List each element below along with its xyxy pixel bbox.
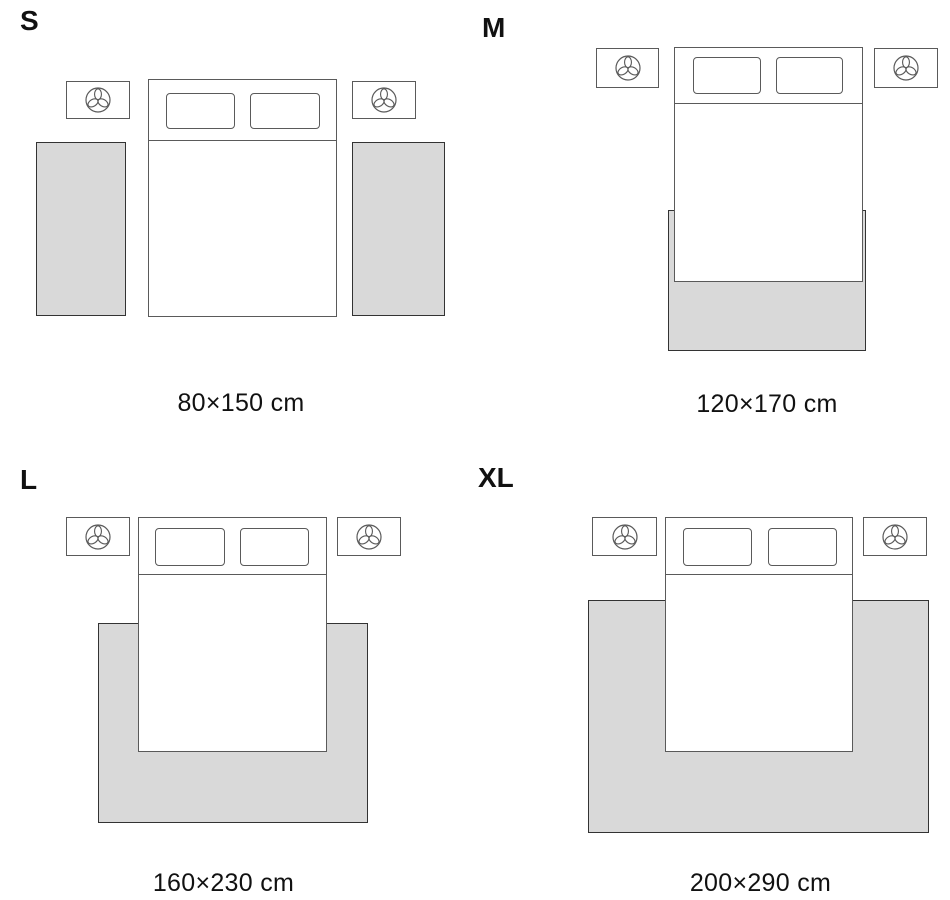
- nightstand-left: [592, 517, 657, 556]
- bed: [665, 517, 853, 752]
- pillow-left: [155, 528, 225, 566]
- pillow-left: [693, 57, 761, 94]
- nightstand-right: [352, 81, 416, 119]
- pillow-right: [776, 57, 843, 94]
- pillow-left: [683, 528, 752, 566]
- nightstand-right: [874, 48, 938, 88]
- plant-icon: [368, 84, 400, 116]
- plant-icon: [890, 52, 922, 84]
- nightstand-left: [596, 48, 659, 88]
- plant-icon: [612, 52, 644, 84]
- bed-headboard-divider: [149, 140, 336, 141]
- bed: [674, 47, 863, 282]
- bed-headboard-divider: [675, 103, 862, 104]
- pillow-right: [240, 528, 309, 566]
- plant-icon: [609, 521, 641, 553]
- nightstand-left: [66, 517, 130, 556]
- pillow-left: [166, 93, 235, 129]
- rug-left-runner: [36, 142, 126, 316]
- nightstand-right: [337, 517, 401, 556]
- plant-icon: [82, 84, 114, 116]
- plant-icon: [353, 521, 385, 553]
- nightstand-right: [863, 517, 927, 556]
- rug-right-runner: [352, 142, 445, 316]
- rug-size-guide: S 80×150 cm M 120×170 cm: [0, 0, 950, 900]
- pillow-right: [250, 93, 320, 129]
- plant-icon: [82, 521, 114, 553]
- bed: [148, 79, 337, 317]
- nightstand-left: [66, 81, 130, 119]
- plant-icon: [879, 521, 911, 553]
- size-caption-xl: 200×290 cm: [592, 868, 929, 898]
- pillow-right: [768, 528, 837, 566]
- size-label-xl: XL: [478, 464, 514, 492]
- bed: [138, 517, 327, 752]
- bed-headboard-divider: [139, 574, 326, 575]
- bed-headboard-divider: [666, 574, 852, 575]
